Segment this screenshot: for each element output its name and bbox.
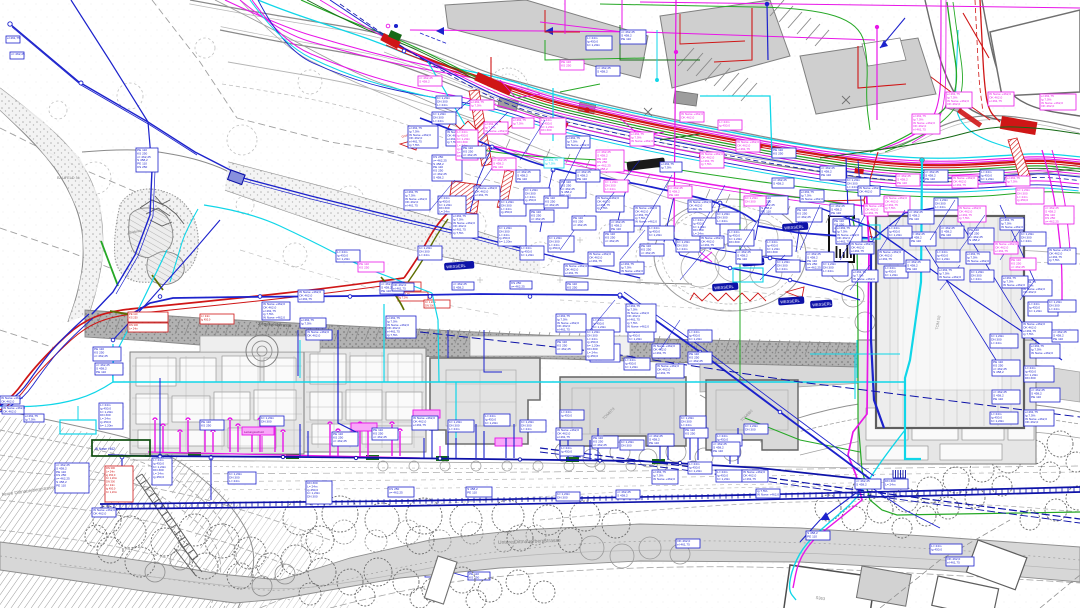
svg-text:v= 462,25: v= 462,25 <box>531 217 545 221</box>
svg-text:L= 24m: L= 24m <box>677 247 688 251</box>
svg-text:el 461,75: el 461,75 <box>393 286 406 290</box>
svg-text:L= 24m: L= 24m <box>439 210 450 214</box>
svg-text:ig 450,0: ig 450,0 <box>561 449 572 453</box>
svg-text:ig 7,5%: ig 7,5% <box>959 216 970 220</box>
svg-text:v= 462,25: v= 462,25 <box>1045 220 1059 224</box>
svg-text:L= 24m: L= 24m <box>847 185 858 189</box>
svg-text:W Nwse +462,0: W Nwse +462,0 <box>801 197 823 201</box>
svg-text:ig 7,5%: ig 7,5% <box>885 206 896 210</box>
svg-text:ig 450,0: ig 450,0 <box>153 475 164 479</box>
svg-text:W Nwse +462,0: W Nwse +462,0 <box>263 316 285 320</box>
svg-text:PE 110: PE 110 <box>577 177 587 181</box>
svg-text:ig 450,0: ig 450,0 <box>501 210 512 214</box>
svg-text:PE 110: PE 110 <box>621 37 631 41</box>
svg-text:L= 24m: L= 24m <box>1021 239 1032 243</box>
svg-text:el 461,75: el 461,75 <box>557 328 570 332</box>
svg-text:b= 1,20m: b= 1,20m <box>337 257 350 261</box>
svg-text:PE 110: PE 110 <box>925 177 935 181</box>
svg-text:DN 300: DN 300 <box>106 480 115 484</box>
svg-text:Leitungsschutz: Leitungsschutz <box>244 430 265 434</box>
svg-text:el 461,75: el 461,75 <box>989 99 1002 103</box>
svg-text:L= 24m: L= 24m <box>521 427 532 431</box>
svg-text:DN 300: DN 300 <box>745 199 756 203</box>
svg-text:L= 24m: L= 24m <box>777 267 788 271</box>
svg-text:PE 110: PE 110 <box>467 490 477 494</box>
svg-text:ig 7,5%: ig 7,5% <box>661 165 672 169</box>
svg-text:ig 450,0: ig 450,0 <box>1017 198 1028 202</box>
svg-text:el 461,75: el 461,75 <box>299 297 312 301</box>
svg-text:S 458,2: S 458,2 <box>969 238 980 242</box>
svg-text:el 461,75: el 461,75 <box>913 128 926 132</box>
svg-text:ig 450,0: ig 450,0 <box>587 354 598 358</box>
svg-text:b= 1,20m: b= 1,20m <box>991 419 1004 423</box>
svg-text:S 458,2: S 458,2 <box>617 493 628 497</box>
svg-text:KS 250: KS 250 <box>685 431 695 435</box>
svg-text:OK 462,0: OK 462,0 <box>947 102 960 106</box>
svg-text:DN 300: DN 300 <box>106 466 115 470</box>
svg-text:ig 450,0: ig 450,0 <box>549 246 560 250</box>
svg-text:b= 1,20m: b= 1,20m <box>1029 309 1042 313</box>
svg-text:PE 110: PE 110 <box>1053 337 1063 341</box>
svg-text:el 461,75: el 461,75 <box>851 249 864 253</box>
svg-text:DN 300: DN 300 <box>745 427 756 431</box>
svg-text:b= 1,20m: b= 1,20m <box>889 233 902 237</box>
svg-text:b= 1,20m: b= 1,20m <box>106 490 117 494</box>
svg-text:ig 7,5%: ig 7,5% <box>453 231 464 235</box>
svg-text:BAUFELD IV: BAUFELD IV <box>57 176 80 180</box>
svg-text:KS 250: KS 250 <box>137 165 147 169</box>
svg-text:PE 110: PE 110 <box>96 370 106 374</box>
svg-text:DN 300: DN 300 <box>729 240 740 244</box>
svg-text:v= 462,25: v= 462,25 <box>11 52 25 56</box>
svg-text:b= 1,20m: b= 1,20m <box>625 365 638 369</box>
svg-text:el 461,75: el 461,75 <box>677 542 690 546</box>
svg-text:v= 462,25: v= 462,25 <box>641 251 655 255</box>
svg-text:L= 24m: L= 24m <box>419 253 430 257</box>
svg-text:PE 110: PE 110 <box>713 449 723 453</box>
svg-text:ig 7,5%: ig 7,5% <box>1023 332 1034 336</box>
svg-text:DN 300: DN 300 <box>129 323 138 327</box>
svg-text:PE 110: PE 110 <box>993 397 1003 401</box>
svg-text:L= 24m: L= 24m <box>449 427 460 431</box>
svg-text:ig 450,0: ig 450,0 <box>201 317 211 321</box>
svg-text:b= 1,20m: b= 1,20m <box>499 240 512 244</box>
svg-text:b= 1,20m: b= 1,20m <box>717 477 730 481</box>
svg-text:W Nwse +462,0: W Nwse +462,0 <box>1001 225 1023 229</box>
svg-text:DN 300: DN 300 <box>1025 376 1036 380</box>
svg-text:PE 110: PE 110 <box>831 211 841 215</box>
svg-text:S 458,2: S 458,2 <box>597 69 608 73</box>
svg-text:KS 250: KS 250 <box>561 63 571 67</box>
svg-text:L= 24m: L= 24m <box>437 103 448 107</box>
svg-text:b= 1,20m: b= 1,20m <box>885 273 898 277</box>
svg-text:el 461,75: el 461,75 <box>7 36 20 40</box>
svg-text:el 461,75: el 461,75 <box>689 207 702 211</box>
svg-text:PE 110: PE 110 <box>761 210 771 214</box>
svg-text:v= 462,25: v= 462,25 <box>463 153 477 157</box>
svg-text:OK 462,0: OK 462,0 <box>93 511 106 515</box>
svg-text:PE 110: PE 110 <box>669 193 679 197</box>
svg-text:L= 24m: L= 24m <box>823 269 834 273</box>
svg-text:S 458,2: S 458,2 <box>453 285 464 289</box>
svg-text:v= 462,25: v= 462,25 <box>373 435 387 439</box>
svg-text:L= 24m: L= 24m <box>129 326 138 330</box>
svg-text:el 461,75: el 461,75 <box>953 183 966 187</box>
svg-text:PE 110: PE 110 <box>907 267 917 271</box>
svg-text:W Nwse +462,0: W Nwse +462,0 <box>621 269 643 273</box>
svg-text:v= 462,25: v= 462,25 <box>797 215 811 219</box>
svg-text:PE 110: PE 110 <box>807 534 817 538</box>
svg-text:v= 462,25: v= 462,25 <box>573 223 587 227</box>
svg-text:el 461,75: el 461,75 <box>837 240 850 244</box>
svg-text:OK 462,0: OK 462,0 <box>307 333 320 337</box>
svg-text:OK 462,0: OK 462,0 <box>859 189 872 193</box>
svg-text:W Nwse +462,0: W Nwse +462,0 <box>653 477 675 481</box>
svg-text:KS 250: KS 250 <box>567 285 577 289</box>
svg-text:b= 1,20m: b= 1,20m <box>937 257 950 261</box>
svg-text:W Nwse +462,0: W Nwse +462,0 <box>967 259 989 263</box>
svg-text:DN 300: DN 300 <box>261 419 272 423</box>
svg-text:PE 110: PE 110 <box>649 441 659 445</box>
svg-text:PE 110: PE 110 <box>493 165 503 169</box>
svg-text:L= 24m: L= 24m <box>935 205 946 209</box>
svg-text:PE 110: PE 110 <box>129 312 138 316</box>
svg-text:L= 24m: L= 24m <box>229 479 240 483</box>
svg-text:OK 462,0: OK 462,0 <box>1 399 14 403</box>
svg-text:ig 450,0: ig 450,0 <box>561 413 572 417</box>
svg-text:W Nwse +462,0: W Nwse +462,0 <box>567 143 589 147</box>
svg-text:OK 462,0: OK 462,0 <box>3 409 16 413</box>
svg-text:b= 1,20m: b= 1,20m <box>629 337 642 341</box>
svg-text:el 461,75: el 461,75 <box>995 249 1008 253</box>
svg-text:W Nwse +462,0: W Nwse +462,0 <box>627 324 649 328</box>
svg-text:ig 450,0: ig 450,0 <box>106 486 116 490</box>
svg-text:v= 462,25: v= 462,25 <box>689 359 703 363</box>
svg-text:PE 110: PE 110 <box>56 483 66 487</box>
svg-text:L= 24m: L= 24m <box>1049 307 1060 311</box>
svg-text:ig 450,0: ig 450,0 <box>719 123 730 127</box>
svg-text:L= 24m: L= 24m <box>433 119 444 123</box>
svg-text:PE 110: PE 110 <box>737 257 747 261</box>
svg-text:v= 462,25: v= 462,25 <box>545 203 559 207</box>
svg-text:PE 110: PE 110 <box>611 227 621 231</box>
svg-text:ig 7,5%: ig 7,5% <box>513 121 524 125</box>
svg-text:PE 110: PE 110 <box>517 177 527 181</box>
svg-text:b= 1,20m: b= 1,20m <box>106 476 117 480</box>
svg-text:el 461,75: el 461,75 <box>743 477 756 481</box>
svg-text:ig 450,0: ig 450,0 <box>525 198 536 202</box>
svg-text:L= 24m: L= 24m <box>693 232 704 236</box>
svg-text:v= 462,25: v= 462,25 <box>333 439 347 443</box>
svg-text:el 461,75: el 461,75 <box>557 435 570 439</box>
svg-text:ig 7,5%: ig 7,5% <box>471 103 482 107</box>
svg-text:b= 1,20m: b= 1,20m <box>485 421 498 425</box>
svg-text:OK 462,0: OK 462,0 <box>681 115 694 119</box>
svg-text:v= 462,25: v= 462,25 <box>593 443 607 447</box>
svg-text:OK 462,0: OK 462,0 <box>1041 104 1054 108</box>
svg-text:W Nwse +462,0: W Nwse +462,0 <box>939 275 961 279</box>
svg-text:L= 24m: L= 24m <box>106 469 115 473</box>
svg-text:L= 24m: L= 24m <box>201 314 210 318</box>
svg-text:PE 110: PE 110 <box>897 181 907 185</box>
svg-text:L= 24m: L= 24m <box>717 219 728 223</box>
svg-text:ig 7,5%: ig 7,5% <box>301 321 312 325</box>
svg-text:b= 1,20m: b= 1,20m <box>981 177 994 181</box>
svg-text:PE 110: PE 110 <box>1031 395 1041 399</box>
svg-text:ig 7,5%: ig 7,5% <box>409 143 420 147</box>
svg-text:W Nwse +462,0: W Nwse +462,0 <box>757 492 779 496</box>
svg-text:L= 24m: L= 24m <box>991 341 1002 345</box>
svg-text:L= 24m: L= 24m <box>681 423 692 427</box>
svg-text:KS 250: KS 250 <box>359 265 369 269</box>
svg-text:PE 110: PE 110 <box>909 217 919 221</box>
svg-text:ig 7,5%: ig 7,5% <box>387 333 398 337</box>
svg-text:b= 1,20m: b= 1,20m <box>587 43 600 47</box>
svg-text:el 461,75: el 461,75 <box>737 147 750 151</box>
svg-text:v= 462,25: v= 462,25 <box>1011 265 1025 269</box>
svg-text:PE 110: PE 110 <box>911 239 921 243</box>
svg-text:L= 24m: L= 24m <box>971 277 982 281</box>
svg-text:el 461,75: el 461,75 <box>653 351 666 355</box>
svg-text:PE 110: PE 110 <box>941 233 951 237</box>
svg-text:KS 250: KS 250 <box>773 151 783 155</box>
svg-text:ig 7,5%: ig 7,5% <box>1049 258 1060 262</box>
svg-text:KS 250: KS 250 <box>129 315 138 319</box>
svg-text:el 461,75: el 461,75 <box>947 560 960 564</box>
svg-text:L= 24m: L= 24m <box>885 482 896 486</box>
svg-text:b= 1,20m: b= 1,20m <box>649 233 662 237</box>
svg-text:W Nwse +462,0: W Nwse +462,0 <box>631 139 653 143</box>
svg-text:el 461,75: el 461,75 <box>879 257 892 261</box>
svg-text:PE 110: PE 110 <box>821 173 831 177</box>
svg-text:b= 1,20m: b= 1,20m <box>689 337 702 341</box>
svg-text:L= 24m: L= 24m <box>106 483 115 487</box>
svg-text:KS 250: KS 250 <box>201 423 211 427</box>
svg-text:W Nwse +462,0: W Nwse +462,0 <box>853 277 875 281</box>
svg-text:L= 24m: L= 24m <box>605 187 616 191</box>
svg-text:W Nwse +462,0: W Nwse +462,0 <box>1003 283 1025 287</box>
svg-text:W Nwse +462,0: W Nwse +462,0 <box>485 129 507 133</box>
svg-text:b= 1,20m: b= 1,20m <box>689 469 702 473</box>
svg-text:S 458,2: S 458,2 <box>419 79 430 83</box>
svg-text:ig 7,5%: ig 7,5% <box>545 161 556 165</box>
svg-text:S 458,2: S 458,2 <box>856 482 867 486</box>
svg-text:v= 462,25: v= 462,25 <box>511 284 525 288</box>
svg-text:OK 462,0: OK 462,0 <box>1025 420 1038 424</box>
svg-text:S 458,2: S 458,2 <box>993 370 1004 374</box>
svg-text:el 461,75: el 461,75 <box>657 371 670 375</box>
svg-text:b= 1,20m: b= 1,20m <box>521 253 534 257</box>
svg-text:b= 1,20m: b= 1,20m <box>593 325 606 329</box>
svg-text:DN 300: DN 300 <box>307 495 318 499</box>
svg-text:S 458,2: S 458,2 <box>433 175 444 179</box>
svg-text:DN 300: DN 300 <box>557 495 568 499</box>
svg-text:ig 7,5%: ig 7,5% <box>701 162 712 166</box>
svg-text:v= 462,25: v= 462,25 <box>94 354 108 358</box>
svg-text:v= 462,25: v= 462,25 <box>807 266 821 270</box>
svg-text:W Nwse +462,0: W Nwse +462,0 <box>1031 351 1053 355</box>
svg-text:el 461,75: el 461,75 <box>565 271 578 275</box>
svg-text:v= 462,25: v= 462,25 <box>605 239 619 243</box>
svg-text:ig 450,0: ig 450,0 <box>931 547 942 551</box>
svg-text:ig 7,5%: ig 7,5% <box>1007 179 1018 183</box>
svg-text:ig 450,0: ig 450,0 <box>106 473 116 477</box>
svg-text:DN 300: DN 300 <box>621 443 632 447</box>
svg-text:W Nwse +462: W Nwse +462 <box>95 447 115 451</box>
svg-text:el 461,75: el 461,75 <box>865 211 878 215</box>
svg-text:el 461,75: el 461,75 <box>413 423 426 427</box>
svg-text:DN 300: DN 300 <box>767 250 778 254</box>
svg-text:ig 7,5%: ig 7,5% <box>25 417 36 421</box>
svg-text:el 461,75: el 461,75 <box>405 204 418 208</box>
svg-text:b= 1,20m: b= 1,20m <box>100 423 113 427</box>
svg-text:el 461,75: el 461,75 <box>701 243 714 247</box>
svg-text:DN 300: DN 300 <box>425 303 434 307</box>
svg-text:DN 300: DN 300 <box>541 128 552 132</box>
svg-text:el 461,75: el 461,75 <box>589 259 602 263</box>
svg-text:v= 462,25: v= 462,25 <box>557 347 571 351</box>
svg-text:S 458,2: S 458,2 <box>773 181 784 185</box>
svg-text:PE 110: PE 110 <box>381 289 391 293</box>
svg-text:el 461,75: el 461,75 <box>475 193 488 197</box>
svg-text:W Nwse +462,0: W Nwse +462,0 <box>635 220 657 224</box>
svg-text:v= 462,25: v= 462,25 <box>389 490 403 494</box>
